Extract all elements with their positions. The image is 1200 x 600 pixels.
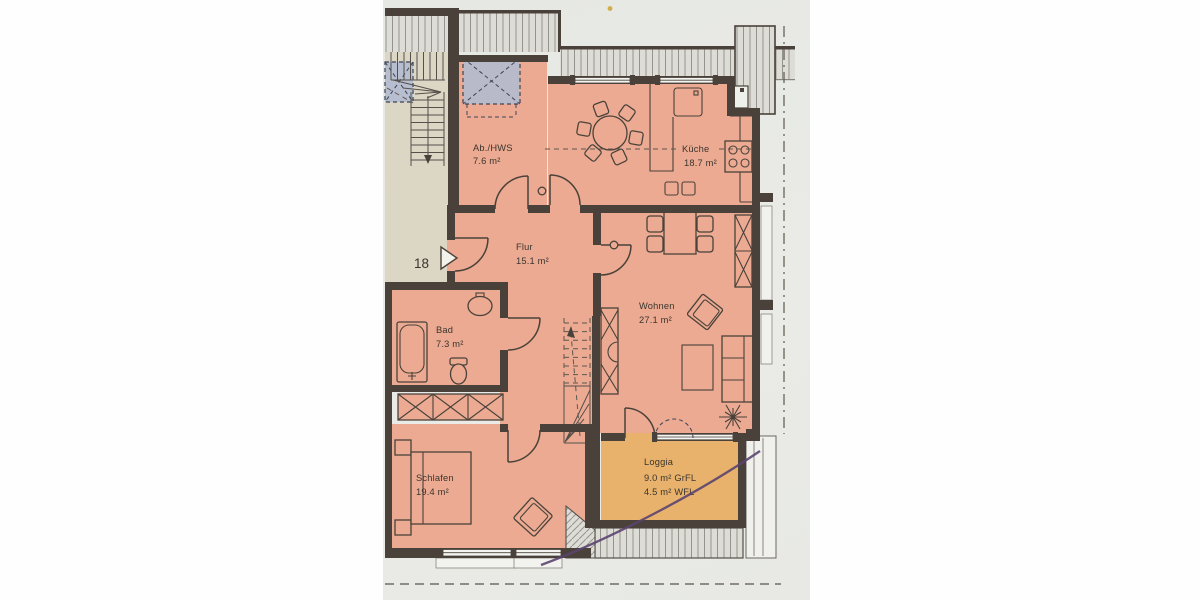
room-label-bad-name: Bad: [436, 325, 453, 335]
dining-table: [664, 206, 696, 254]
room-label-abhws-name: Ab./HWS: [473, 143, 513, 153]
dining-chair: [697, 216, 713, 232]
room-label-schlafen-area: 19.4 m²: [416, 487, 449, 497]
door-knob: [610, 241, 618, 249]
room-label-kueche-name: Küche: [682, 144, 709, 154]
room-label-kueche-area: 18.7 m²: [684, 158, 717, 168]
dining-chair: [697, 236, 713, 252]
kitchen-chair: [628, 130, 643, 145]
room-label-loggia-name: Loggia: [644, 457, 674, 467]
room-label-loggia-grfl: 9.0 m² GrFL: [644, 473, 696, 483]
sofa: [722, 336, 753, 402]
floor-plan-drawing: Ab./HWS 7.6 m² Küche 18.7 m² Flur 15.1 m…: [383, 0, 810, 600]
bathroom-sink: [468, 297, 492, 316]
room-label-bad-area: 7.3 m²: [436, 339, 464, 349]
kitchen-stove: [725, 141, 752, 172]
dining-chair: [647, 216, 663, 232]
room-label-flur-area: 15.1 m²: [516, 256, 549, 266]
scanned-floorplan-page: Ab./HWS 7.6 m² Küche 18.7 m² Flur 15.1 m…: [0, 0, 1200, 600]
nightstand: [395, 440, 411, 455]
room-label-wohnen-name: Wohnen: [639, 301, 675, 311]
door-knob: [538, 187, 546, 195]
room-label-wohnen-area: 27.1 m²: [639, 315, 672, 325]
unit-number: 18: [414, 256, 429, 271]
stair-side-shelf: [601, 308, 618, 394]
nightstand: [395, 520, 411, 535]
room-label-abhws-area: 7.6 m²: [473, 156, 501, 166]
room-label-schlafen-name: Schlafen: [416, 473, 454, 483]
kitchen-round-table: [593, 116, 627, 150]
room-label-flur-name: Flur: [516, 242, 533, 252]
right-roof-strip: [746, 436, 776, 558]
paper-spe​ck: [608, 6, 613, 11]
dining-chair: [647, 236, 663, 252]
toilet: [451, 364, 467, 384]
floorplan-photo: Ab./HWS 7.6 m² Küche 18.7 m² Flur 15.1 m…: [383, 0, 810, 600]
kitchen-chair: [576, 121, 591, 136]
